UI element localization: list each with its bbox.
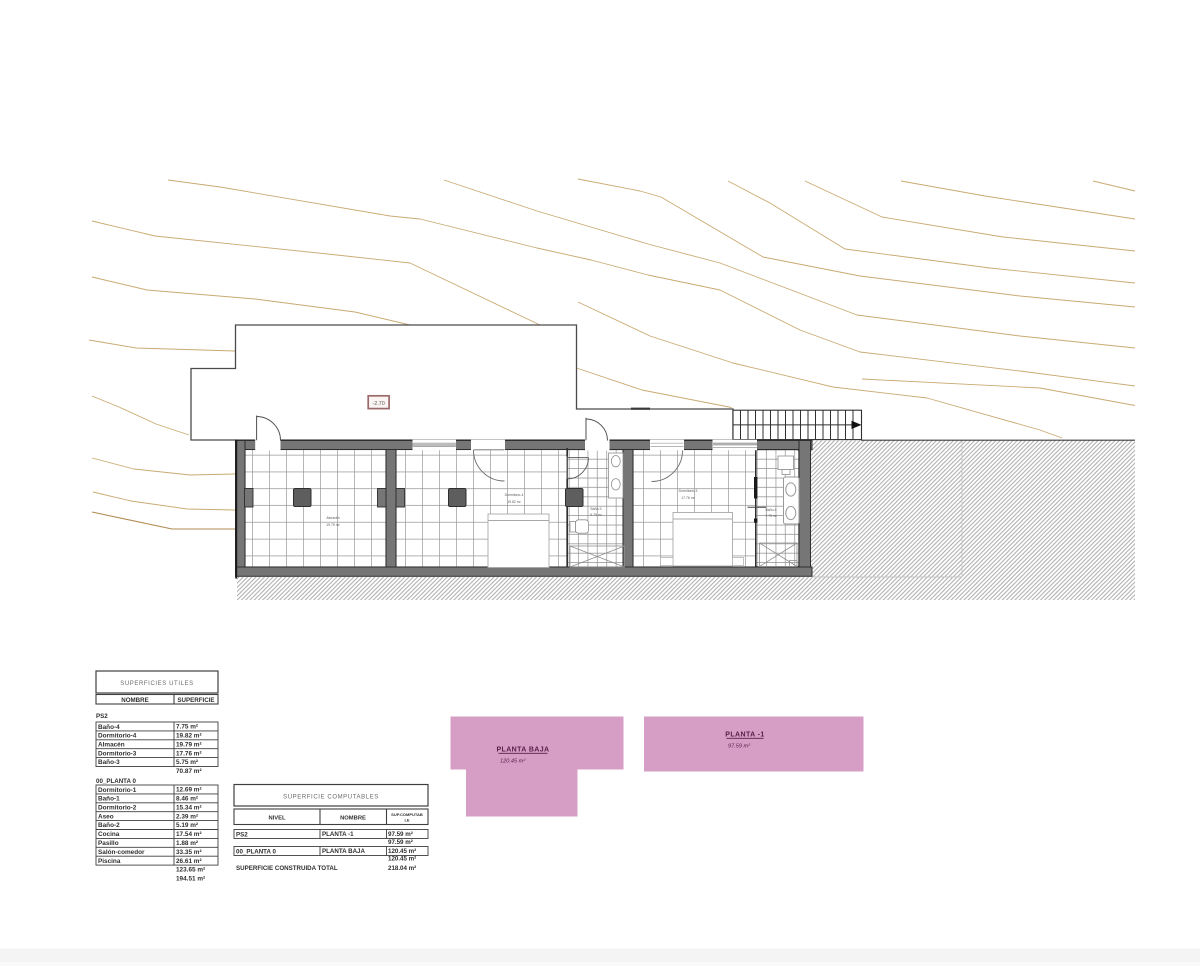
svg-text:Piscina: Piscina [98, 858, 121, 865]
svg-text:Cocina: Cocina [98, 831, 120, 838]
svg-text:SUP.COMPUTAB: SUP.COMPUTAB [391, 812, 423, 817]
svg-text:120.45 m²: 120.45 m² [388, 856, 416, 863]
svg-text:Baño-4: Baño-4 [766, 508, 777, 512]
svg-text:5.75 m²: 5.75 m² [590, 513, 602, 517]
svg-text:Baño-3: Baño-3 [591, 507, 602, 511]
svg-text:SUPERFICIE CONSTRUIDA TOTAL: SUPERFICIE CONSTRUIDA TOTAL [236, 865, 338, 872]
svg-text:PLANTA BAJA: PLANTA BAJA [322, 848, 365, 855]
svg-text:NOMBRE: NOMBRE [340, 815, 366, 821]
svg-text:00_PLANTA 0: 00_PLANTA 0 [96, 778, 136, 785]
svg-text:120.45 m²: 120.45 m² [388, 848, 416, 855]
svg-text:97.59 m²: 97.59 m² [728, 744, 751, 750]
svg-text:194.51 m²: 194.51 m² [176, 876, 205, 883]
svg-text:Dormitorio-4: Dormitorio-4 [98, 733, 137, 740]
svg-text:NOMBRE: NOMBRE [121, 697, 149, 704]
svg-text:-2.70: -2.70 [372, 401, 384, 407]
svg-text:17.76 m²: 17.76 m² [681, 496, 695, 500]
svg-text:PLANTA -1: PLANTA -1 [725, 732, 764, 739]
svg-text:LE: LE [404, 817, 409, 822]
svg-text:SUPERFICIES UTILES: SUPERFICIES UTILES [120, 681, 193, 687]
svg-text:Aseo: Aseo [98, 813, 114, 820]
svg-text:17.76 m²: 17.76 m² [176, 750, 202, 757]
svg-text:97.59 m²: 97.59 m² [388, 839, 413, 846]
svg-text:Salón-comedor: Salón-comedor [98, 849, 145, 856]
svg-text:19.82 m²: 19.82 m² [176, 733, 202, 740]
svg-text:2.39 m²: 2.39 m² [176, 813, 198, 820]
svg-text:Baño-2: Baño-2 [98, 822, 120, 829]
svg-text:Dormitorio-3: Dormitorio-3 [98, 750, 137, 757]
svg-text:SUPERFICIE: SUPERFICIE [177, 697, 214, 704]
svg-text:Dormitorio-3: Dormitorio-3 [679, 489, 698, 493]
svg-text:NIVEL: NIVEL [268, 815, 286, 821]
svg-text:PS2: PS2 [236, 831, 248, 838]
svg-text:19.79 m²: 19.79 m² [176, 741, 202, 748]
svg-text:Baño-1: Baño-1 [98, 796, 120, 803]
svg-text:70.87 m²: 70.87 m² [176, 768, 202, 775]
svg-text:Dormitorio-4: Dormitorio-4 [505, 493, 524, 497]
svg-text:SUPERFICIE COMPUTABLES: SUPERFICIE COMPUTABLES [283, 795, 379, 801]
svg-text:123.65 m²: 123.65 m² [176, 867, 205, 874]
svg-text:PS2: PS2 [96, 713, 108, 720]
svg-text:26.61 m²: 26.61 m² [176, 858, 202, 865]
svg-text:Baño-3: Baño-3 [98, 759, 120, 766]
svg-text:7.75 m²: 7.75 m² [176, 724, 198, 731]
svg-text:33.35 m²: 33.35 m² [176, 849, 202, 856]
svg-text:Dormitorio-1: Dormitorio-1 [98, 787, 137, 794]
svg-text:15.34 m²: 15.34 m² [176, 804, 202, 811]
svg-text:8.46 m²: 8.46 m² [176, 796, 198, 803]
svg-text:Pasillo: Pasillo [98, 840, 119, 847]
svg-text:17.54 m²: 17.54 m² [176, 831, 202, 838]
svg-text:120.45 m²: 120.45 m² [500, 759, 526, 765]
svg-text:Baño-4: Baño-4 [98, 724, 120, 731]
svg-text:19.82 m²: 19.82 m² [507, 500, 521, 504]
svg-text:97.59 m²: 97.59 m² [388, 831, 413, 838]
svg-text:PLANTA BAJA: PLANTA BAJA [496, 747, 549, 754]
svg-text:1.88 m²: 1.88 m² [176, 840, 198, 847]
svg-text:218.04 m²: 218.04 m² [388, 865, 416, 872]
svg-text:Almacén: Almacén [98, 741, 125, 748]
svg-text:5.75 m²: 5.75 m² [176, 759, 198, 766]
svg-text:Almacén: Almacén [326, 516, 339, 520]
svg-text:12.69 m²: 12.69 m² [176, 787, 202, 794]
svg-text:00_PLANTA 0: 00_PLANTA 0 [236, 848, 276, 855]
svg-text:Dormitorio-2: Dormitorio-2 [98, 804, 137, 811]
svg-text:PLANTA -1: PLANTA -1 [322, 831, 354, 838]
svg-text:19.79 m²: 19.79 m² [326, 523, 340, 527]
svg-text:5.19 m²: 5.19 m² [176, 822, 198, 829]
svg-text:7.75 m²: 7.75 m² [765, 514, 777, 518]
